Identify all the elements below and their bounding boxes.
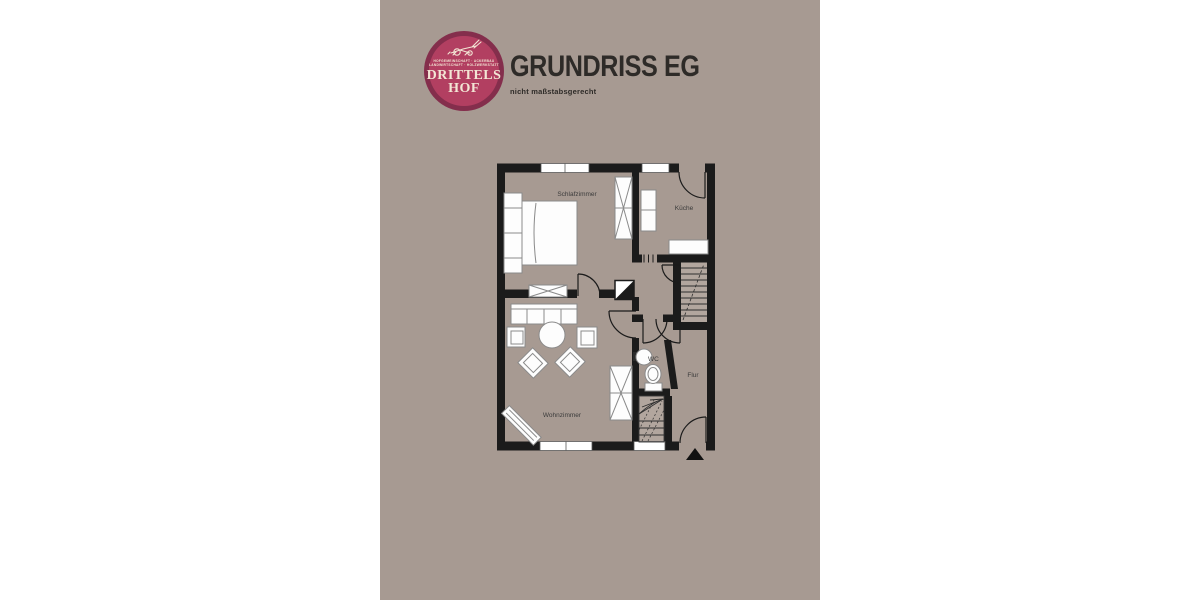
- armchair-right: [577, 327, 597, 348]
- coffee-table: [539, 322, 565, 348]
- door-entrance: [680, 417, 706, 443]
- window-stair: [634, 442, 665, 451]
- furniture-kitchen: [641, 190, 708, 254]
- nightstand-top: [504, 193, 522, 208]
- floorplan: Schlafzimmer Küche Wohnzimmer WC Flur: [380, 0, 820, 600]
- armchair-angled-2: [555, 347, 585, 377]
- bed: [522, 201, 577, 265]
- room-label-wc: WC: [648, 356, 659, 363]
- kitchen-counter: [669, 240, 708, 254]
- window-kitchen: [642, 164, 669, 173]
- wardrobe-bedroom: [615, 177, 632, 239]
- armchair-angled-1: [518, 348, 548, 378]
- room-label-flur: Flur: [687, 372, 699, 379]
- sofa: [511, 304, 577, 324]
- room-label-wohnzimmer: Wohnzimmer: [543, 412, 582, 419]
- toilet-cistern: [645, 383, 662, 391]
- pillow-2: [504, 233, 522, 258]
- dresser-bedroom: [529, 285, 567, 297]
- sideboard-diagonal: [502, 406, 542, 446]
- room-label-schlafzimmer: Schlafzimmer: [557, 191, 597, 198]
- armchair-left: [507, 327, 525, 347]
- door-living-room: [609, 311, 636, 338]
- door-kitchen-exterior: [679, 172, 705, 198]
- nightstand-bottom: [504, 258, 522, 273]
- chimney: [615, 281, 634, 300]
- content-panel: HOFGEMEINSCHAFT · ACKERBAU LANDWIRTSCHAF…: [380, 0, 820, 600]
- wardrobe-hall: [610, 366, 632, 420]
- room-label-kueche: Küche: [675, 205, 694, 212]
- page: HOFGEMEINSCHAFT · ACKERBAU LANDWIRTSCHAF…: [0, 0, 1200, 600]
- pillow-1: [504, 208, 522, 233]
- door-wc: [643, 319, 667, 343]
